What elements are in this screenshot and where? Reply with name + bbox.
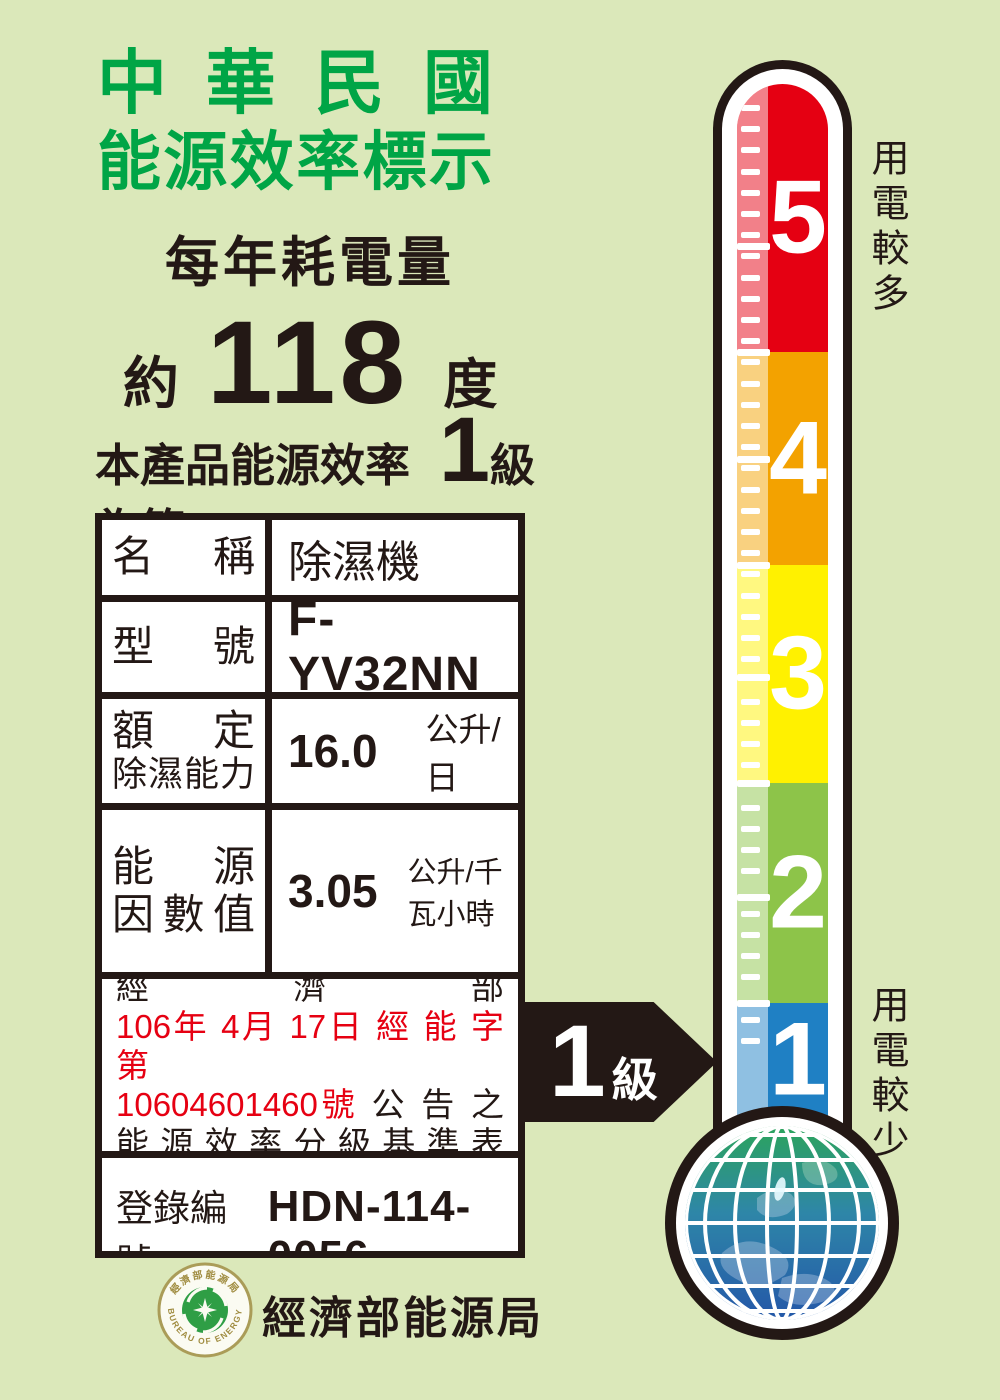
thermometer-tick — [741, 338, 760, 344]
model-value: F-YV32NN — [288, 602, 518, 692]
thermometer-tick — [741, 699, 760, 705]
capacity-unit: 公升/日 — [426, 703, 518, 799]
thermometer-tick — [737, 894, 770, 901]
bureau-of-energy-seal-icon: 經濟部能源局 BUREAU OF ENERGY — [155, 1260, 255, 1360]
thermometer-tick — [737, 562, 770, 569]
factor-label-line2: 因數值 — [112, 891, 255, 939]
thermometer-tick — [741, 911, 760, 917]
legal-notice-line: 10604601460號 公 告 之 — [116, 1085, 504, 1124]
legal-notice-line: 能 源 效 率 分 級 基 準 表 標 示 — [116, 1124, 504, 1152]
thermometer-tick — [741, 571, 760, 577]
thermometer-tick — [741, 126, 760, 132]
thermometer-tick — [741, 974, 760, 980]
thermometer-tick — [741, 720, 760, 726]
legal-notice-text: 能 源 效 率 分 級 基 準 表 標 示 — [116, 1125, 504, 1152]
efficiency-grade-line: 本產品能源效率為第 1 級 — [95, 414, 535, 494]
model-label: 型 號 — [112, 623, 255, 671]
thermometer-tick — [741, 465, 760, 471]
table-row-energy-factor: 能 源 因數值 3.05 公升/千瓦小時 — [102, 810, 518, 972]
thermometer-tick — [741, 169, 760, 175]
factor-label-cell: 能 源 因數值 — [102, 810, 272, 972]
thermometer-level-4-number: 4 — [769, 399, 827, 518]
thermometer-tick — [741, 296, 760, 302]
thermometer-tick — [741, 805, 760, 811]
factor-label-line1: 能 源 — [112, 843, 255, 891]
thermometer-tick — [741, 868, 760, 874]
annual-consumption-line: 約 118 度 — [95, 295, 525, 415]
thermometer-tick — [741, 211, 760, 217]
thermometer-tick — [741, 593, 760, 599]
thermometer-tick — [741, 253, 760, 259]
capacity-label-line2: 除濕能力 — [112, 755, 255, 795]
thermometer-tick — [741, 508, 760, 514]
annual-consumption-heading: 每年耗電量 — [95, 218, 525, 297]
thermometer-tick — [741, 1017, 760, 1023]
thermometer-tick — [741, 953, 760, 959]
thermometer-tick — [741, 105, 760, 111]
thermometer-tick — [741, 656, 760, 662]
label-title-line2: 能源效率標示 — [97, 130, 493, 194]
thermometer-tick — [741, 487, 760, 493]
label-title-line1: 中 華 民 國 — [97, 48, 493, 118]
thermometer-tick — [741, 635, 760, 641]
thermometer-tick — [741, 529, 760, 535]
grade-number: 1 — [439, 414, 490, 488]
arrow-grade-number: 1 — [549, 1002, 606, 1120]
thermometer-tick — [737, 456, 770, 463]
thermometer-tick — [737, 780, 770, 787]
legal-notice-cell: 本產品能源效率分級係依經濟部106年 4月 17日 經 能 字 第1060460… — [102, 979, 518, 1151]
table-row-model: 型 號 F-YV32NN — [102, 602, 518, 692]
thermometer-tick — [737, 243, 770, 250]
factor-value-cell: 3.05 公升/千瓦小時 — [272, 810, 518, 972]
arrow-grade-suffix: 級 — [612, 1044, 658, 1110]
grade-suffix-text: 級 — [490, 429, 535, 494]
thermometer-tick — [741, 232, 760, 238]
approx-text: 約 — [123, 339, 179, 420]
globe-icon — [662, 1103, 902, 1343]
legal-notice-red-text: 106年 4月 17日 經 能 字 第 — [116, 1008, 504, 1084]
thermometer-tick — [741, 826, 760, 832]
table-row-registration: 登錄編號： HDN-114-0056 — [102, 1158, 518, 1251]
thermometer-level-1-number: 1 — [769, 1001, 827, 1120]
legal-notice-line: 106年 4月 17日 經 能 字 第 — [116, 1007, 504, 1085]
thermometer-tick — [741, 847, 760, 853]
capacity-label-line1: 額 定 — [112, 707, 255, 755]
thermometer-tick — [741, 359, 760, 365]
thermometer-tick — [741, 317, 760, 323]
thermometer-tick — [741, 444, 760, 450]
capacity-label-cell: 額 定 除濕能力 — [102, 699, 272, 803]
thermometer-tick — [741, 190, 760, 196]
factor-value: 3.05 — [288, 864, 378, 918]
thermometer-level-2-number: 2 — [769, 834, 827, 953]
registration-label: 登錄編號： — [116, 1178, 268, 1251]
thermometer-tick — [741, 762, 760, 768]
factor-unit: 公升/千瓦小時 — [408, 849, 518, 933]
table-row-capacity: 額 定 除濕能力 16.0 公升/日 — [102, 699, 518, 803]
uses-more-power-label: 用電較多 — [859, 138, 914, 318]
thermometer-tick — [741, 147, 760, 153]
table-row-name: 名 稱 除濕機 — [102, 520, 518, 595]
legal-notice-red-text: 10604601460號 — [116, 1086, 358, 1123]
registration-line: 登錄編號： HDN-114-0056 — [102, 1158, 518, 1251]
thermometer-tick — [741, 402, 760, 408]
thermometer-tick — [737, 674, 770, 681]
name-value-cell: 除濕機 — [272, 520, 518, 595]
thermometer-tick — [737, 1000, 770, 1007]
thermometer-level-3-number: 3 — [769, 615, 827, 734]
model-label-cell: 型 號 — [102, 602, 272, 692]
thermometer-tube: 54321 — [737, 84, 828, 1160]
legal-notice-text: 公 告 之 — [358, 1086, 504, 1123]
thermometer-tick — [741, 381, 760, 387]
thermometer-tick — [741, 1038, 760, 1044]
thermometer-tick — [741, 275, 760, 281]
thermometer-tick — [741, 423, 760, 429]
thermometer-level-5-number: 5 — [769, 159, 827, 278]
thermometer-tick — [741, 741, 760, 747]
registration-value: HDN-114-0056 — [268, 1182, 518, 1251]
thermometer-tick — [741, 550, 760, 556]
name-value: 除濕機 — [288, 526, 420, 590]
capacity-value: 16.0 — [288, 724, 378, 778]
spec-table: 名 稱 除濕機 型 號 F-YV32NN 額 定 除濕能力 16.0 公升/日 — [95, 513, 525, 1258]
name-label: 名 稱 — [112, 533, 255, 581]
model-value-cell: F-YV32NN — [272, 602, 518, 692]
name-label-cell: 名 稱 — [102, 520, 272, 595]
legal-notice-line: 本產品能源效率分級係依經濟部 — [116, 979, 504, 1007]
legal-notice-text: 本產品能源效率分級係依經濟部 — [116, 979, 504, 1006]
energy-efficiency-label: 中 華 民 國 能源效率標示 每年耗電量 約 118 度 本產品能源效率為第 1… — [0, 0, 1000, 1400]
thermometer-tick — [741, 614, 760, 620]
capacity-value-cell: 16.0 公升/日 — [272, 699, 518, 803]
thermometer-tick — [737, 349, 770, 356]
annual-consumption-value: 118 — [207, 295, 409, 431]
thermometer-tick — [741, 932, 760, 938]
agency-name: 經濟部能源局 — [262, 1282, 544, 1346]
